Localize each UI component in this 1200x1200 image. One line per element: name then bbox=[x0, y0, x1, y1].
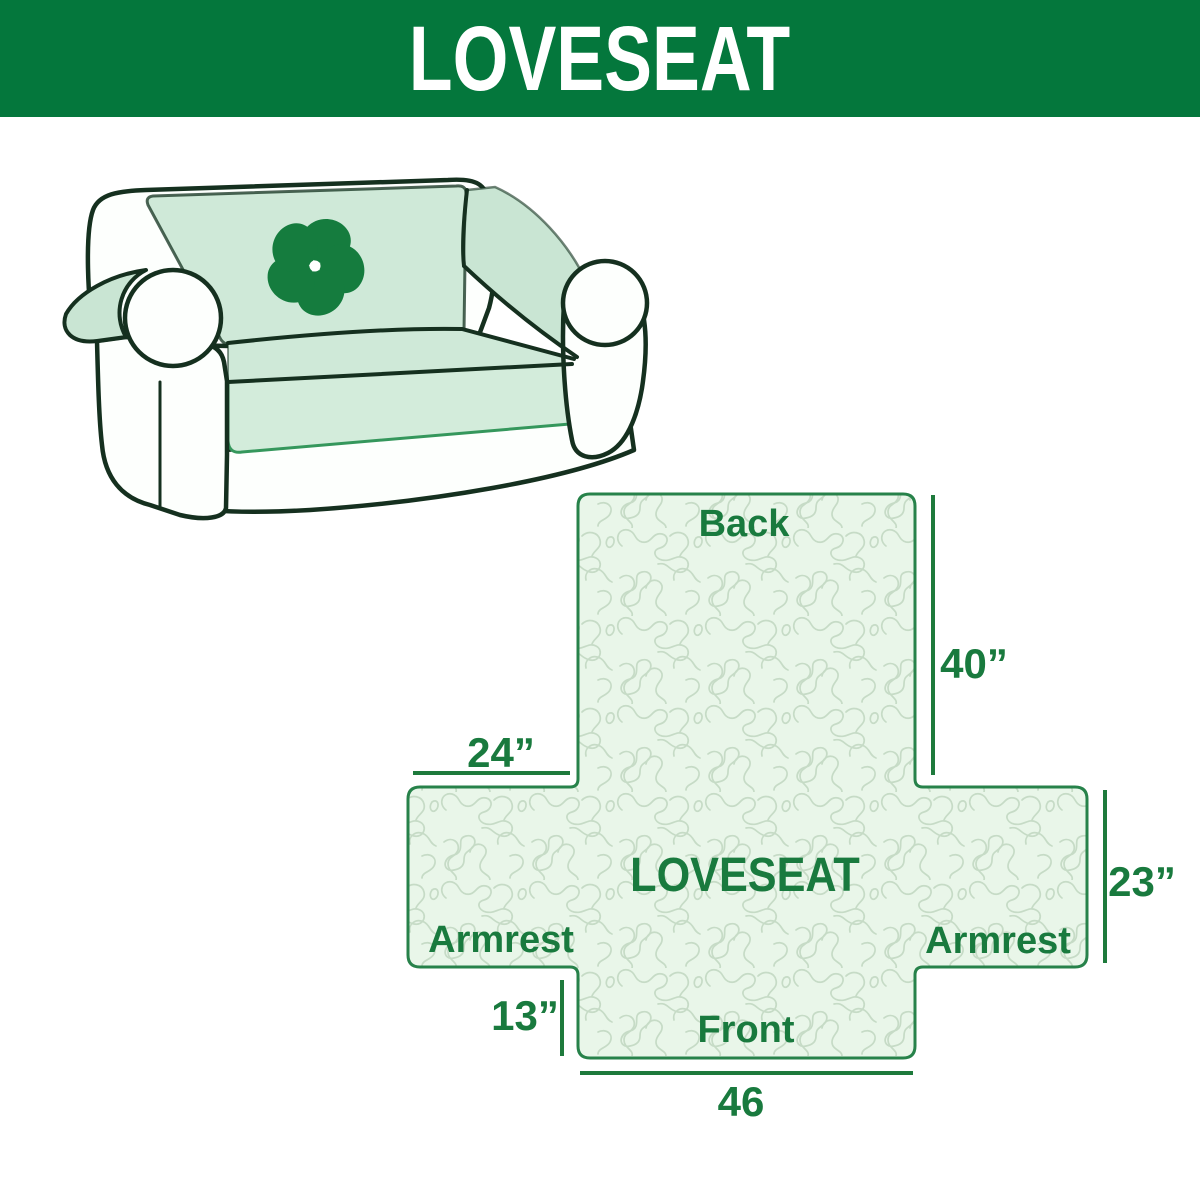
dimension-armrest-side-height: 23” bbox=[1108, 861, 1176, 903]
dimension-back-height: 40” bbox=[940, 643, 1008, 685]
diagram-label-front: Front bbox=[697, 1011, 794, 1049]
dimension-front-width: 46 bbox=[718, 1081, 765, 1123]
diagram-label-armrest-left: Armrest bbox=[428, 921, 574, 959]
sofa-right-arm-roll bbox=[563, 261, 647, 345]
cover-dimension-diagram bbox=[408, 494, 1105, 1073]
diagram-center-label: LOVESEAT bbox=[630, 852, 860, 900]
diagram-label-armrest-right: Armrest bbox=[925, 922, 1071, 960]
infographic-page: LOVESEAT bbox=[0, 0, 1200, 1200]
sofa-left-arm-roll bbox=[125, 270, 221, 366]
dimension-front-drop: 13” bbox=[491, 995, 559, 1037]
vector-art-layer bbox=[0, 0, 1200, 1200]
dimension-armrest-top-width: 24” bbox=[467, 732, 535, 774]
sofa-illustration bbox=[64, 180, 647, 518]
diagram-label-back: Back bbox=[699, 505, 790, 543]
cover-cross-shape bbox=[408, 494, 1087, 1058]
